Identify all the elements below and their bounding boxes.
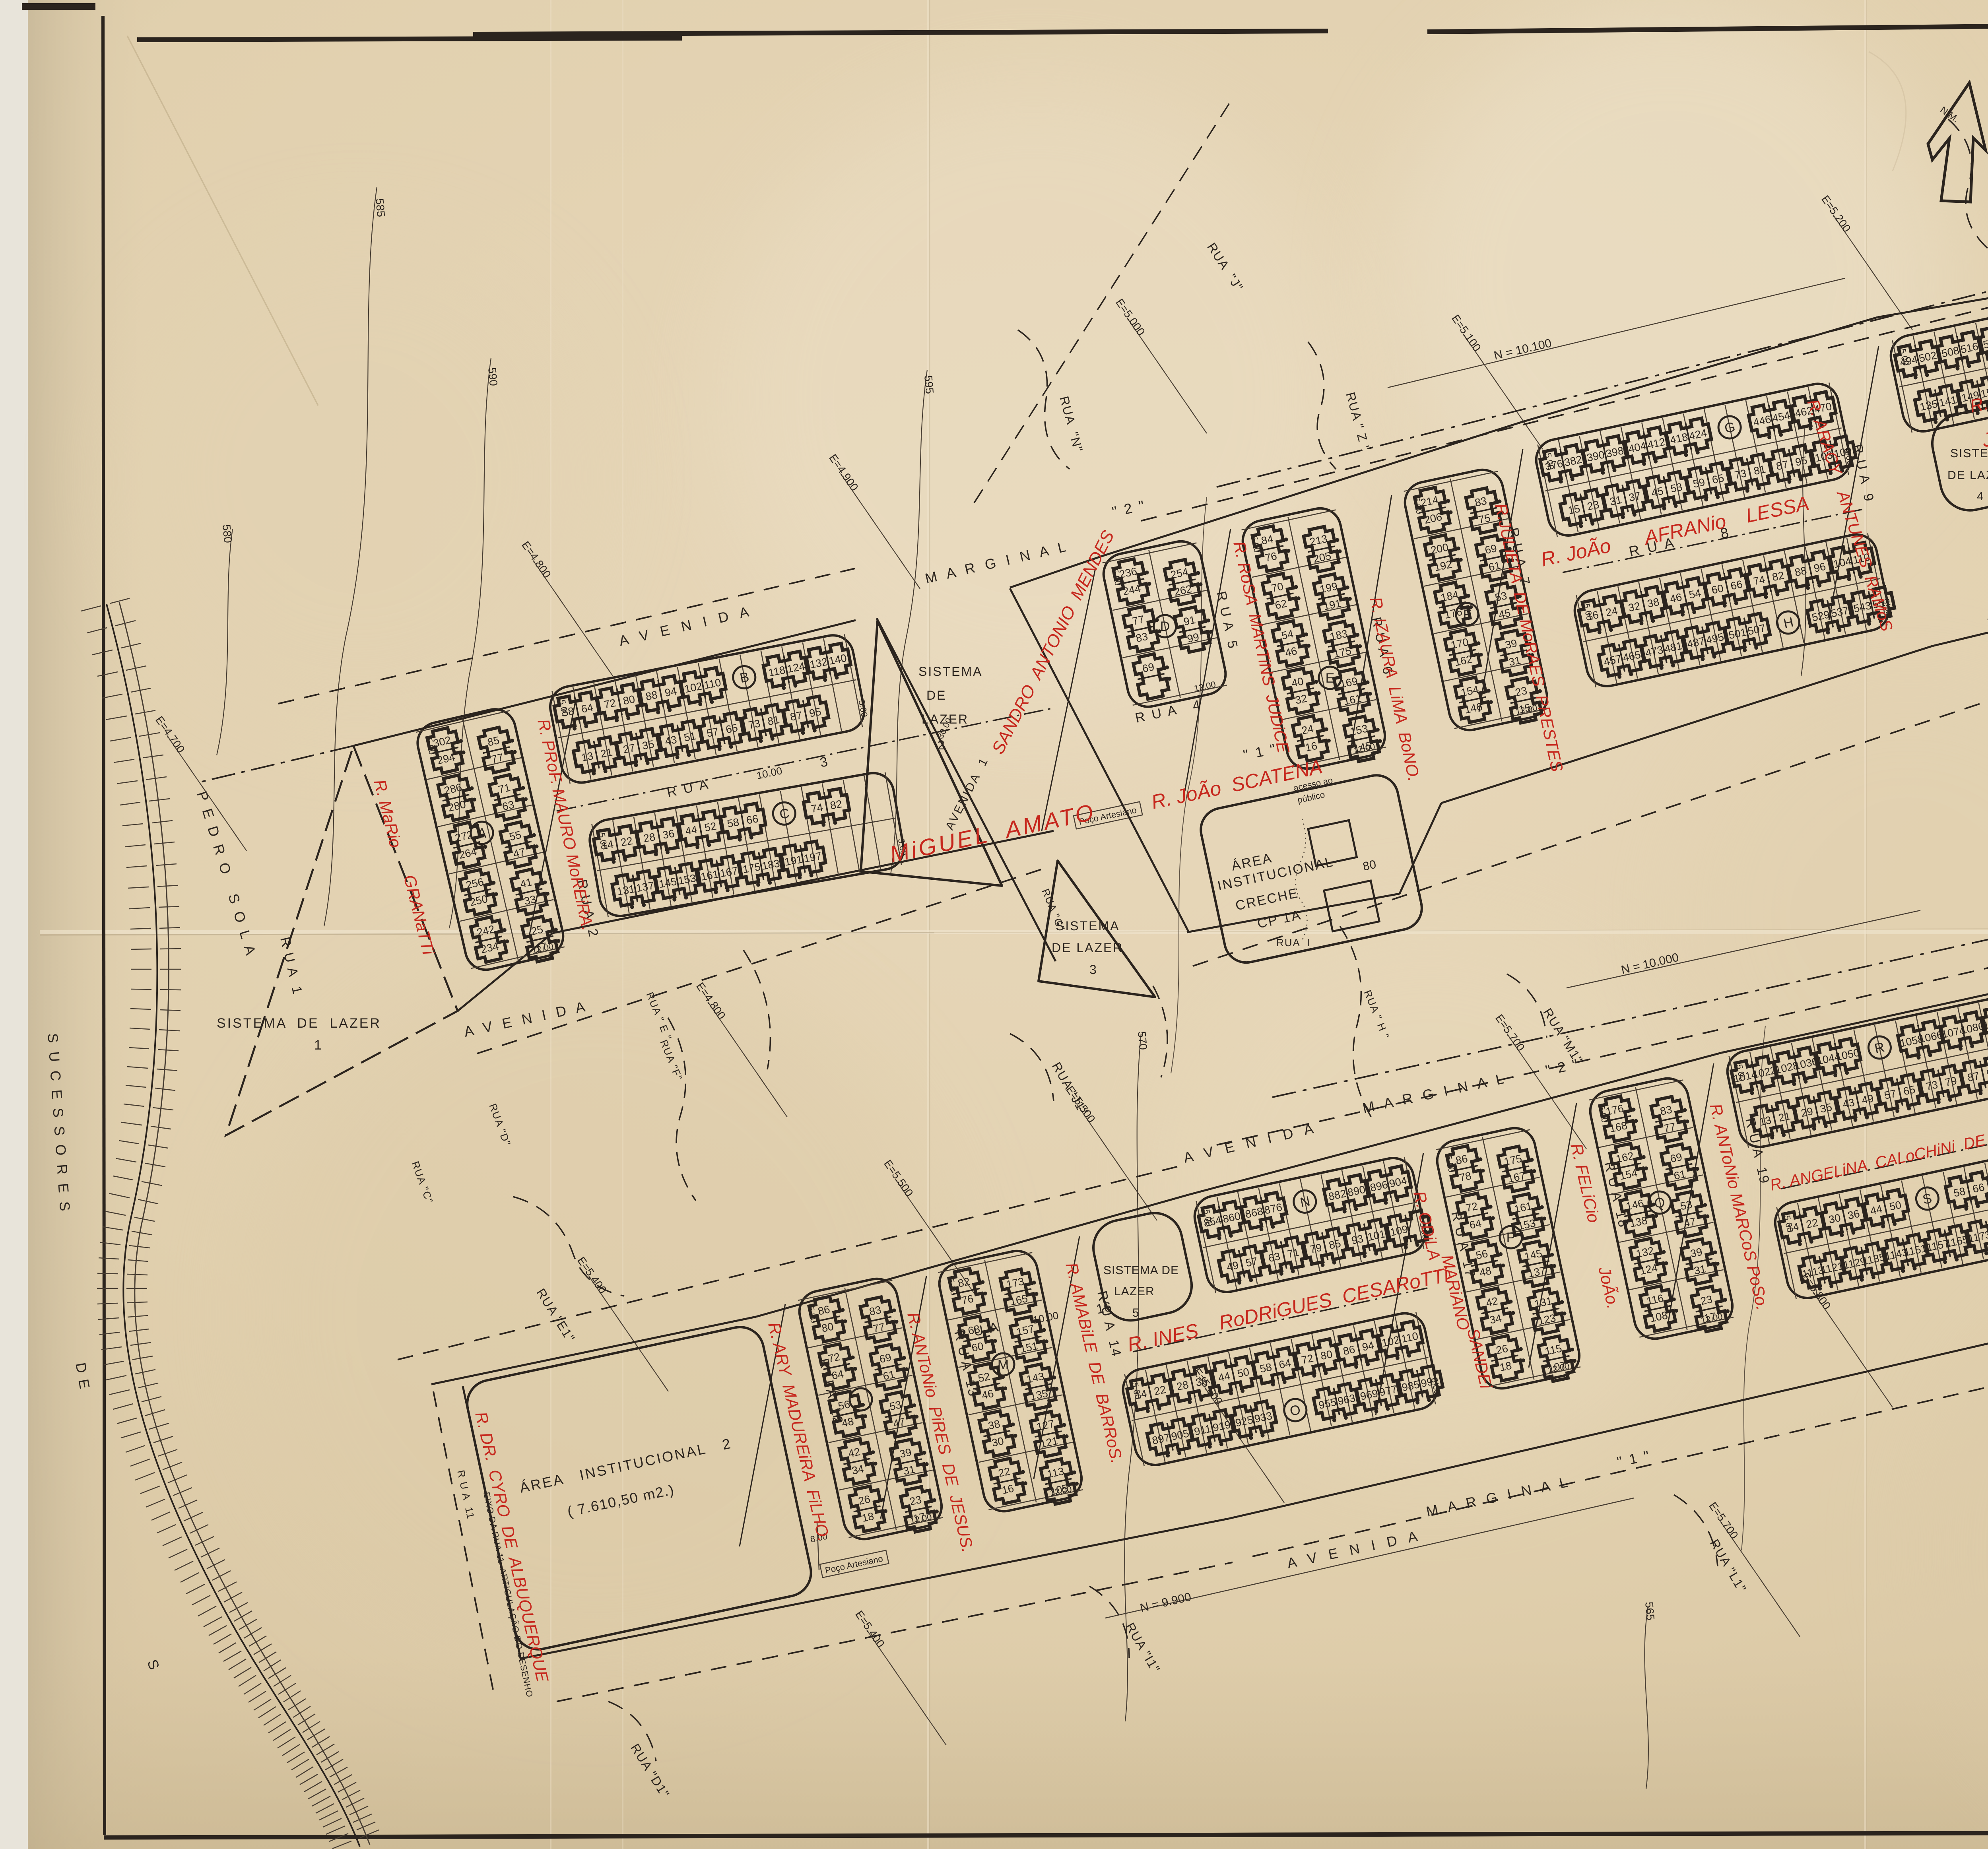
svg-text:54: 54 bbox=[1280, 628, 1295, 642]
svg-text:83: 83 bbox=[868, 1304, 883, 1318]
svg-text:35: 35 bbox=[641, 738, 655, 752]
svg-text:Q: Q bbox=[1654, 1195, 1665, 1211]
svg-text:18: 18 bbox=[861, 1510, 875, 1525]
svg-text:73: 73 bbox=[747, 717, 761, 731]
svg-text:39: 39 bbox=[1689, 1246, 1704, 1260]
svg-text:57: 57 bbox=[1883, 1087, 1897, 1102]
svg-text:56: 56 bbox=[1475, 1248, 1489, 1262]
svg-text:82: 82 bbox=[829, 798, 843, 812]
svg-text:46: 46 bbox=[1669, 591, 1683, 605]
svg-text:42: 42 bbox=[1485, 1295, 1499, 1309]
svg-text:79: 79 bbox=[1944, 1075, 1958, 1089]
svg-text:16: 16 bbox=[1001, 1482, 1015, 1497]
svg-text:74: 74 bbox=[810, 801, 824, 815]
svg-text:78: 78 bbox=[1458, 1170, 1473, 1184]
svg-text:16: 16 bbox=[1304, 740, 1318, 754]
svg-text:DE LAZER: DE LAZER bbox=[1052, 941, 1123, 955]
svg-text:51: 51 bbox=[683, 730, 697, 744]
svg-text:35: 35 bbox=[1819, 1101, 1833, 1116]
svg-text:69: 69 bbox=[878, 1351, 893, 1366]
svg-text:SISTEMA: SISTEMA bbox=[1950, 447, 1988, 460]
svg-text:18: 18 bbox=[1499, 1360, 1513, 1374]
svg-text:93: 93 bbox=[1350, 1232, 1365, 1247]
svg-text:SISTEMA: SISTEMA bbox=[918, 664, 982, 679]
svg-text:23: 23 bbox=[1514, 685, 1528, 699]
svg-text:50: 50 bbox=[1888, 1199, 1903, 1213]
svg-text:23: 23 bbox=[1699, 1293, 1714, 1308]
svg-text:47: 47 bbox=[892, 1416, 906, 1430]
svg-text:66: 66 bbox=[1730, 578, 1744, 592]
svg-text:28: 28 bbox=[643, 831, 656, 845]
svg-text:29: 29 bbox=[1800, 1105, 1814, 1119]
svg-text:38: 38 bbox=[987, 1418, 1002, 1432]
svg-text:99: 99 bbox=[1186, 631, 1200, 645]
svg-text:A: A bbox=[478, 826, 487, 841]
svg-text:53: 53 bbox=[1494, 590, 1508, 604]
svg-text:91: 91 bbox=[1182, 614, 1197, 628]
svg-text:24: 24 bbox=[1605, 605, 1619, 619]
svg-text:74: 74 bbox=[1752, 573, 1767, 588]
svg-text:71: 71 bbox=[1286, 1246, 1301, 1261]
svg-text:87: 87 bbox=[1967, 1070, 1981, 1084]
svg-text:36: 36 bbox=[1194, 1375, 1209, 1389]
svg-text:72: 72 bbox=[1301, 1352, 1315, 1366]
svg-text:DE LAZER: DE LAZER bbox=[1947, 469, 1988, 482]
svg-text:46: 46 bbox=[1284, 645, 1298, 659]
svg-text:40: 40 bbox=[1291, 675, 1305, 689]
svg-text:570: 570 bbox=[1136, 1031, 1149, 1050]
svg-text:82: 82 bbox=[957, 1275, 971, 1290]
svg-text:22: 22 bbox=[1153, 1383, 1167, 1398]
svg-text:31: 31 bbox=[1508, 654, 1522, 668]
svg-text:D: D bbox=[1160, 619, 1170, 634]
svg-text:E: E bbox=[1326, 671, 1335, 686]
svg-text:SISTEMA DE LAZER: SISTEMA DE LAZER bbox=[217, 1016, 381, 1031]
svg-text:L: L bbox=[857, 1392, 865, 1407]
svg-text:86: 86 bbox=[1342, 1343, 1356, 1358]
svg-text:43: 43 bbox=[1842, 1096, 1856, 1110]
svg-text:80: 80 bbox=[1319, 1348, 1334, 1362]
svg-text:5: 5 bbox=[1132, 1306, 1139, 1319]
svg-text:72: 72 bbox=[1465, 1200, 1479, 1215]
svg-text:21: 21 bbox=[600, 746, 613, 760]
svg-text:65: 65 bbox=[1902, 1083, 1916, 1098]
svg-text:32: 32 bbox=[1627, 600, 1642, 614]
svg-text:83: 83 bbox=[1135, 631, 1149, 645]
svg-text:44: 44 bbox=[1217, 1370, 1231, 1384]
svg-text:21: 21 bbox=[1777, 1110, 1792, 1124]
svg-text:585: 585 bbox=[373, 198, 387, 217]
svg-text:64: 64 bbox=[1278, 1357, 1292, 1371]
svg-text:88: 88 bbox=[645, 689, 658, 702]
svg-text:73: 73 bbox=[1734, 467, 1748, 481]
svg-text:60: 60 bbox=[971, 1340, 985, 1354]
svg-text:22: 22 bbox=[620, 835, 634, 849]
svg-text:23: 23 bbox=[1586, 499, 1600, 513]
svg-text:95: 95 bbox=[808, 706, 822, 720]
svg-text:27: 27 bbox=[622, 742, 636, 756]
svg-text:LAZER: LAZER bbox=[1114, 1285, 1155, 1298]
svg-text:81: 81 bbox=[767, 714, 780, 728]
svg-text:59: 59 bbox=[1692, 476, 1706, 490]
svg-text:30: 30 bbox=[1828, 1212, 1842, 1226]
svg-text:82: 82 bbox=[1771, 569, 1785, 584]
svg-text:72: 72 bbox=[603, 697, 617, 711]
svg-text:53: 53 bbox=[1669, 481, 1683, 495]
svg-text:69: 69 bbox=[1669, 1151, 1683, 1165]
svg-text:76: 76 bbox=[1264, 550, 1278, 564]
svg-text:64: 64 bbox=[1468, 1217, 1483, 1232]
svg-text:565: 565 bbox=[1643, 1601, 1657, 1621]
svg-text:46: 46 bbox=[980, 1387, 995, 1402]
svg-text:52: 52 bbox=[703, 820, 717, 834]
svg-text:P: P bbox=[1507, 1230, 1516, 1245]
svg-text:580: 580 bbox=[220, 524, 234, 543]
svg-text:61: 61 bbox=[1487, 559, 1502, 574]
svg-text:DE: DE bbox=[926, 688, 946, 702]
svg-text:77: 77 bbox=[1131, 613, 1145, 628]
svg-text:76: 76 bbox=[961, 1292, 975, 1307]
svg-text:57: 57 bbox=[1244, 1255, 1259, 1269]
svg-text:45: 45 bbox=[1497, 607, 1512, 621]
svg-text:43: 43 bbox=[664, 733, 678, 747]
svg-text:SISTEMA: SISTEMA bbox=[1056, 919, 1120, 933]
svg-text:77: 77 bbox=[1663, 1120, 1677, 1135]
svg-text:73: 73 bbox=[1925, 1079, 1939, 1093]
svg-text:66: 66 bbox=[1971, 1181, 1986, 1195]
svg-text:31: 31 bbox=[1609, 494, 1623, 508]
svg-text:61: 61 bbox=[882, 1368, 896, 1383]
svg-text:77: 77 bbox=[872, 1321, 886, 1335]
svg-text:4: 4 bbox=[1977, 490, 1984, 503]
svg-text:38: 38 bbox=[1646, 596, 1660, 610]
svg-text:22: 22 bbox=[997, 1465, 1011, 1480]
svg-text:37: 37 bbox=[1628, 490, 1642, 504]
svg-text:94: 94 bbox=[1361, 1339, 1375, 1354]
svg-text:60: 60 bbox=[1710, 582, 1725, 596]
svg-text:1: 1 bbox=[314, 1038, 322, 1053]
svg-text:80: 80 bbox=[821, 1320, 835, 1335]
svg-text:65: 65 bbox=[1711, 472, 1725, 486]
svg-text:64: 64 bbox=[580, 701, 594, 715]
svg-text:31: 31 bbox=[902, 1463, 916, 1477]
svg-text:63: 63 bbox=[1267, 1250, 1281, 1265]
svg-text:65: 65 bbox=[725, 722, 739, 735]
svg-text:62: 62 bbox=[1274, 598, 1288, 612]
svg-text:49: 49 bbox=[1860, 1092, 1875, 1106]
svg-text:70: 70 bbox=[1270, 580, 1285, 595]
svg-text:53: 53 bbox=[888, 1399, 903, 1413]
svg-text:590: 590 bbox=[486, 367, 500, 386]
svg-text:26: 26 bbox=[857, 1493, 872, 1508]
svg-text:36: 36 bbox=[662, 827, 676, 841]
svg-text:58: 58 bbox=[726, 816, 740, 830]
svg-text:50: 50 bbox=[1236, 1366, 1250, 1380]
svg-text:86: 86 bbox=[817, 1303, 831, 1317]
svg-text:13: 13 bbox=[1758, 1114, 1773, 1128]
svg-text:M: M bbox=[998, 1357, 1009, 1372]
svg-text:66: 66 bbox=[745, 813, 759, 827]
svg-text:85: 85 bbox=[1328, 1237, 1342, 1251]
svg-text:58: 58 bbox=[1953, 1185, 1967, 1199]
svg-text:36: 36 bbox=[1846, 1208, 1861, 1222]
svg-text:15: 15 bbox=[1567, 503, 1581, 517]
svg-text:39: 39 bbox=[899, 1446, 913, 1460]
svg-text:26: 26 bbox=[1495, 1343, 1509, 1357]
svg-text:87: 87 bbox=[1775, 458, 1790, 473]
svg-text:SISTEMA DE: SISTEMA DE bbox=[1103, 1264, 1179, 1277]
svg-text:86: 86 bbox=[1454, 1152, 1469, 1167]
svg-text:39: 39 bbox=[1504, 637, 1518, 651]
svg-text:79: 79 bbox=[1309, 1241, 1323, 1255]
svg-text:80: 80 bbox=[622, 693, 636, 707]
svg-text:45: 45 bbox=[1650, 485, 1665, 499]
svg-text:F: F bbox=[1463, 607, 1472, 622]
svg-text:75: 75 bbox=[1477, 512, 1492, 526]
svg-text:57: 57 bbox=[706, 726, 720, 739]
svg-text:48: 48 bbox=[1478, 1265, 1493, 1279]
svg-text:34: 34 bbox=[851, 1463, 865, 1477]
svg-text:3: 3 bbox=[1089, 962, 1097, 977]
svg-text:81: 81 bbox=[1753, 463, 1767, 477]
svg-text:13: 13 bbox=[580, 750, 594, 764]
svg-text:28: 28 bbox=[1176, 1379, 1190, 1393]
svg-text:58: 58 bbox=[1259, 1361, 1273, 1375]
svg-text:23: 23 bbox=[909, 1494, 923, 1508]
svg-text:69: 69 bbox=[1484, 542, 1498, 557]
svg-text:49: 49 bbox=[1225, 1259, 1240, 1273]
svg-text:87: 87 bbox=[789, 709, 803, 723]
svg-text:53: 53 bbox=[1679, 1198, 1693, 1213]
svg-text:34: 34 bbox=[1489, 1312, 1503, 1326]
svg-text:44: 44 bbox=[1869, 1203, 1883, 1217]
svg-text:24: 24 bbox=[1301, 723, 1315, 737]
svg-text:32: 32 bbox=[1294, 692, 1309, 706]
svg-text:47: 47 bbox=[1683, 1215, 1697, 1230]
svg-text:54: 54 bbox=[1688, 587, 1702, 601]
svg-text:96: 96 bbox=[1813, 561, 1827, 575]
svg-text:88: 88 bbox=[1794, 565, 1808, 579]
svg-text:52: 52 bbox=[977, 1370, 991, 1385]
svg-text:80: 80 bbox=[1362, 858, 1378, 873]
svg-text:69: 69 bbox=[1141, 661, 1155, 675]
svg-text:83: 83 bbox=[1659, 1103, 1673, 1118]
svg-text:31: 31 bbox=[1693, 1263, 1707, 1277]
svg-text:84: 84 bbox=[1260, 533, 1274, 547]
svg-text:44: 44 bbox=[684, 823, 698, 837]
svg-text:42: 42 bbox=[847, 1445, 862, 1460]
svg-text:61: 61 bbox=[1673, 1168, 1687, 1182]
svg-text:22: 22 bbox=[1805, 1216, 1819, 1231]
svg-text:30: 30 bbox=[991, 1435, 1005, 1449]
svg-text:83: 83 bbox=[1474, 495, 1488, 509]
svg-text:595: 595 bbox=[922, 375, 936, 394]
svg-text:94: 94 bbox=[664, 685, 678, 699]
svg-text:RUA I: RUA I bbox=[1276, 937, 1311, 949]
svg-text:95: 95 bbox=[1794, 454, 1808, 469]
